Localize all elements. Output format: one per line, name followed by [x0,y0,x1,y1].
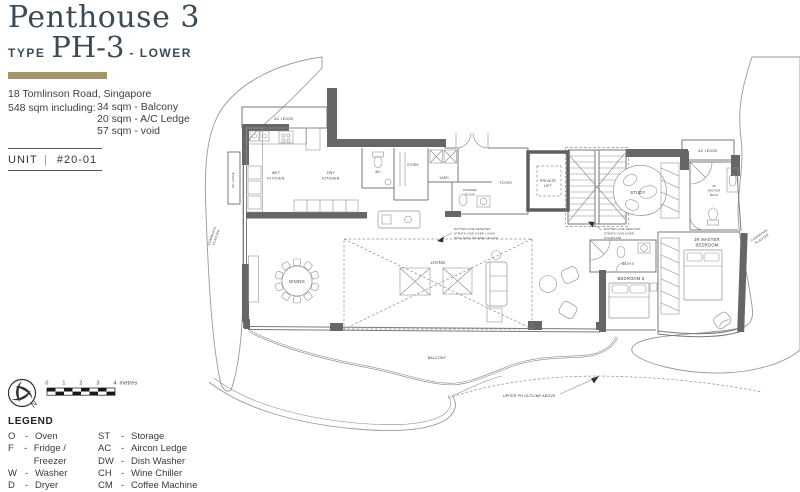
svg-text:BEDROOM: BEDROOM [695,243,718,248]
annotation-upper-ph: UPPER PH OUTLINE ABOVE [503,376,599,398]
svg-text:1: 1 [62,381,65,387]
site-boundary-curves [209,376,762,431]
room-label-dining: DINING [289,279,305,284]
room-label-bath-5: BATH 5 [622,262,634,266]
legend-item: F-Fridge / Freezer [8,443,98,468]
svg-text:WITH HIGH VOLUME CEILING: WITH HIGH VOLUME CEILING [454,236,498,240]
ac-ledge-right: AC LEDGE [682,140,734,160]
ac-ledge-left: AC LEDGE [228,152,240,204]
svg-text:0: 0 [45,381,48,387]
living-area: LIVING [344,239,580,329]
svg-text:KITCHEN: KITCHEN [267,177,284,181]
wet-kitchen: WET KITCHEN [247,128,307,212]
room-label-yard: YARD [439,176,449,180]
legend-item: CM-Coffee Machine [98,480,197,492]
room-label-store: STORE [407,163,419,167]
private-lift: PRIVATE LIFT [528,152,568,210]
legend-title: LEGEND [8,416,197,427]
jr-master-bedroom: JR MASTER BEDROOM [684,237,733,330]
legend-item: CH-Wine Chiller [98,468,197,480]
svg-text:BATH: BATH [710,193,718,197]
svg-text:STAIRCASE: STAIRCASE [604,236,621,240]
upper-ph-outline-dashed [448,376,762,398]
room-label-dry-kitchen: DRY [327,171,336,175]
svg-text:KITCHEN: KITCHEN [322,177,339,181]
annotation-void-living: DOTTED LINE DENOTES STRATA VOID OVER LIV… [437,227,498,243]
room-label-powder-room: POWDER [463,188,477,192]
svg-text:ROOM: ROOM [465,193,475,197]
room-label-study: STUDY [630,190,645,195]
legend: LEGEND O-Oven F-Fridge / Freezer W-Washe… [8,416,197,492]
scale-bar: 0 1 2 3 4 metres [45,381,137,396]
svg-text:2: 2 [79,381,82,387]
room-label-jr-master-bedroom: JR MASTER [694,237,720,242]
legend-item: D-Dryer [8,480,98,492]
floorplan-page: Penthouse 3 TYPE PH-3 - LOWER 18 Tomlins… [0,0,800,492]
room-label-wc: WC [375,170,381,174]
svg-text:4: 4 [113,381,116,387]
room-label-bedroom-5: BEDROOM 5 [618,276,645,281]
room-label-planter-right: COMMUNAL PLANTER [750,228,771,247]
bedroom-5: BEDROOM 5 [609,276,657,318]
svg-text:3: 3 [96,381,99,387]
dining-area: DINING [249,256,320,303]
svg-text:STRATA VOID OVER LIVING: STRATA VOID OVER LIVING [454,232,495,236]
service-rooms: WC STORE YARD POWDER ROOM FOYER [373,150,513,207]
room-label-living: LIVING [431,260,446,265]
svg-text:UPPER PH OUTLINE ABOVE: UPPER PH OUTLINE ABOVE [503,394,556,398]
legend-item: AC-Aircon Ledge [98,443,197,455]
room-label-ac-ledge-right: AC LEDGE [698,149,718,153]
room-label-planter-left: COMMUNAL PLANTER [207,225,222,247]
room-label-private-lift: PRIVATE [540,179,557,183]
legend-item: ST-Storage [98,431,197,443]
room-label-ac-ledge-left: AC LEDGE [231,172,235,188]
room-label-jr-master-bath: JR [712,184,716,188]
svg-text:DOTTED LINE DENOTES: DOTTED LINE DENOTES [604,227,641,231]
legend-item: W-Washer [8,468,98,480]
entry-door-arcs [456,133,488,148]
jr-master-bath: JR MASTER BATH [690,162,738,230]
legend-item: O-Oven [8,431,98,443]
svg-text:MASTER: MASTER [708,189,721,193]
bath-5: BATH 5 [590,240,650,272]
scale-unit-label: metres [120,381,138,387]
room-label-balcony: BALCONY [428,356,447,360]
room-label-foyer: FOYER [500,181,512,185]
study: STUDY [613,165,666,215]
north-compass-icon: N [9,380,40,410]
room-label-ac-ledge-top: AC LEDGE [274,117,294,121]
svg-text:STRATA VOID OVER: STRATA VOID OVER [604,232,634,236]
room-label-wet-kitchen: WET [272,171,281,175]
legend-column-1: O-Oven F-Fridge / Freezer W-Washer D-Dry… [8,431,98,492]
svg-text:DOTTED LINE DENOTES: DOTTED LINE DENOTES [454,227,491,231]
svg-text:LIFT: LIFT [544,184,553,188]
legend-column-2: ST-Storage AC-Aircon Ledge DW-Dish Washe… [98,431,197,492]
legend-item: DW-Dish Washer [98,456,197,468]
compass-north-label: N [29,399,40,409]
